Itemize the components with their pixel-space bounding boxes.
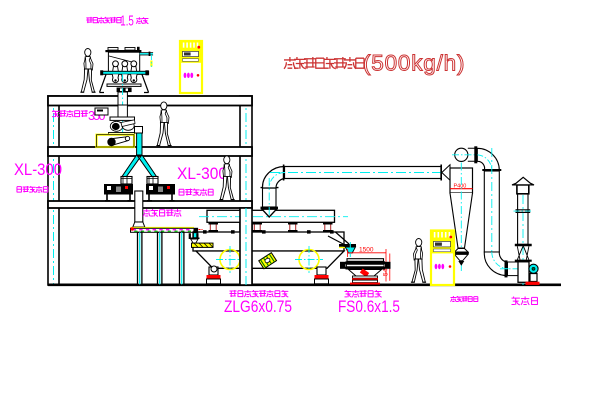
svg-text:ZLG6x0.75: ZLG6x0.75 [224, 297, 292, 316]
svg-text:XL-300: XL-300 [177, 165, 227, 183]
svg-text:1.5: 1.5 [120, 14, 134, 30]
svg-text:1500: 1500 [359, 247, 374, 254]
svg-text:FS0.6x1.5: FS0.6x1.5 [338, 297, 400, 316]
svg-text:XL-300: XL-300 [14, 161, 62, 179]
svg-text:(500kg/h): (500kg/h) [363, 51, 465, 76]
